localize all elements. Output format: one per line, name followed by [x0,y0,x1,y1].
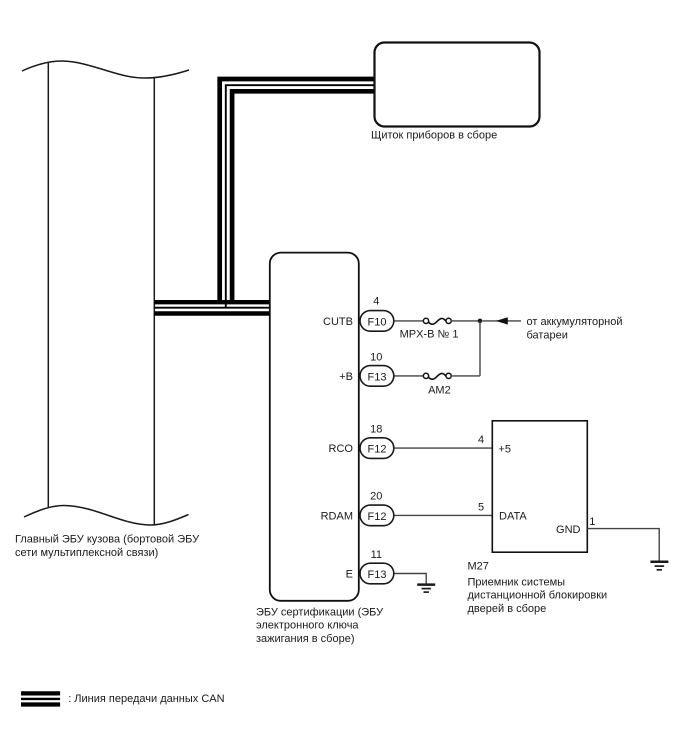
svg-text:F10: F10 [368,316,387,328]
svg-text:+5: +5 [498,443,511,455]
svg-text:: Линия передачи данных CAN: : Линия передачи данных CAN [68,693,224,705]
svg-text:18: 18 [370,423,382,435]
svg-text:Приемник системы: Приемник системы [468,576,566,588]
svg-text:1: 1 [589,516,595,528]
svg-text:F13: F13 [368,569,387,581]
svg-text:Щиток приборов в сборе: Щиток приборов в сборе [371,129,497,141]
svg-text:5: 5 [478,502,484,514]
svg-text:CUTB: CUTB [323,316,353,328]
svg-text:сети мультиплексной связи): сети мультиплексной связи) [15,547,158,559]
svg-text:дистанционной блокировки: дистанционной блокировки [468,590,608,602]
svg-text:11: 11 [371,549,382,561]
svg-text:10: 10 [370,351,382,363]
svg-text:RCO: RCO [329,443,354,455]
svg-text:электронного ключа: электронного ключа [256,620,359,632]
svg-text:MPX-B № 1: MPX-B № 1 [400,329,459,341]
svg-text:батареи: батареи [527,330,568,342]
svg-text:E: E [346,568,353,580]
svg-text:20: 20 [370,491,382,503]
svg-text:GND: GND [556,524,581,536]
svg-text:от аккумуляторной: от аккумуляторной [527,316,623,328]
svg-text:дверей в сборе: дверей в сборе [468,603,547,615]
svg-text:AM2: AM2 [428,385,451,397]
svg-text:M27: M27 [468,560,489,572]
svg-text:Главный ЭБУ кузова (бортовой Э: Главный ЭБУ кузова (бортовой ЭБУ [15,533,200,545]
svg-text:F12: F12 [368,444,387,456]
svg-text:4: 4 [373,296,379,308]
svg-text:F12: F12 [368,511,387,523]
svg-text:зажигания в сборе): зажигания в сборе) [256,633,355,645]
svg-text:+B: +B [339,371,353,383]
svg-text:RDAM: RDAM [321,510,353,522]
svg-text:ЭБУ сертификации (ЭБУ: ЭБУ сертификации (ЭБУ [256,606,384,618]
svg-text:F13: F13 [368,371,387,383]
svg-text:DATA: DATA [499,510,527,522]
svg-text:4: 4 [478,434,484,446]
